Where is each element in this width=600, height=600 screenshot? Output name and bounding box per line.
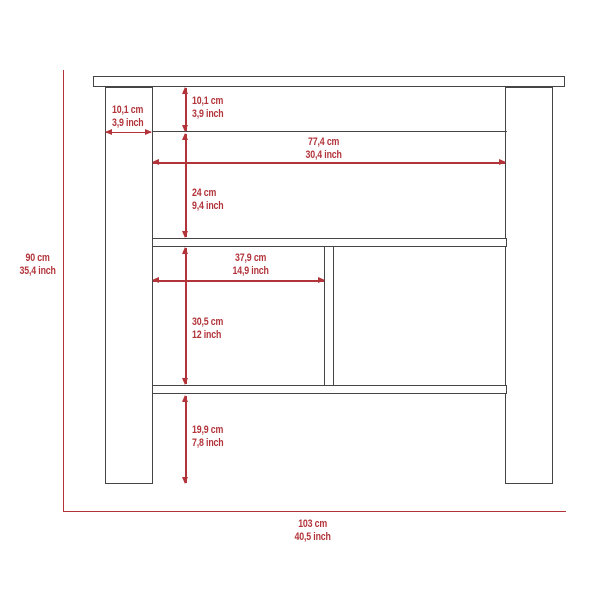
top-rail-height-label: 10,1 cm 3,9 inch [192, 95, 231, 120]
leg-width-arrow [106, 132, 151, 134]
upper-compartment-height-cm: 24 cm [192, 187, 224, 200]
arrowhead-down-icon [182, 477, 188, 484]
upper-compartment-height-inch: 9,4 inch [192, 200, 224, 213]
inner-width-cm: 77,4 cm [306, 136, 342, 149]
arrowhead-right-icon [145, 129, 152, 135]
upper-compartment-height-arrow [185, 134, 187, 237]
arrowhead-up-icon [182, 87, 188, 94]
leg-width-cm: 10,1 cm [112, 104, 144, 117]
cubby-height-cm: 30,5 cm [192, 316, 223, 329]
cubby-width-inch: 14,9 inch [233, 265, 269, 278]
arrowhead-left-icon [105, 129, 112, 135]
cubby-width-arrow [153, 280, 324, 282]
arrowhead-down-icon [182, 125, 188, 132]
arrowhead-down-icon [182, 378, 188, 385]
leg-width-inch: 3,9 inch [112, 117, 144, 130]
cubby-width-cm: 37,9 cm [233, 252, 269, 265]
cubby-height-inch: 12 inch [192, 329, 223, 342]
right-leg [505, 87, 553, 484]
top-rail-height-cm: 10,1 cm [192, 95, 224, 108]
arrowhead-left-icon [152, 277, 159, 283]
overall-height-inch: 35,4 inch [20, 265, 56, 278]
arrowhead-down-icon [182, 231, 188, 238]
bottom-gap-height-inch: 7,8 inch [192, 437, 224, 450]
arrowhead-up-icon [182, 133, 188, 140]
inner-width-arrow [153, 162, 505, 164]
upper-compartment-height-label: 24 cm 9,4 inch [192, 187, 231, 212]
arrowhead-up-icon [182, 247, 188, 254]
arrowhead-up-icon [182, 395, 188, 402]
height-extension-line [63, 70, 65, 512]
width-extension-line [63, 511, 566, 513]
overall-width-inch: 40,5 inch [295, 531, 331, 544]
left-leg [105, 87, 153, 484]
cubby-height-label: 30,5 cm 12 inch [192, 316, 231, 341]
arrowhead-right-icon [499, 159, 506, 165]
bottom-gap-height-cm: 19,9 cm [192, 424, 224, 437]
bottom-gap-height-label: 19,9 cm 7,8 inch [192, 424, 231, 449]
overall-width-cm: 103 cm [295, 518, 331, 531]
bottom-gap-height-arrow [185, 396, 187, 483]
countertop [93, 76, 565, 87]
inner-width-inch: 30,4 inch [306, 149, 342, 162]
top-rail-height-inch: 3,9 inch [192, 108, 224, 121]
top-rail-line [152, 131, 507, 133]
center-divider [324, 246, 334, 387]
overall-height-cm: 90 cm [20, 252, 56, 265]
arrowhead-left-icon [152, 159, 159, 165]
cubby-height-arrow [185, 248, 187, 384]
top-rail-height-arrow [185, 88, 187, 131]
arrowhead-right-icon [318, 277, 325, 283]
dimension-diagram: 90 cm 35,4 inch 10,1 cm 3,9 inch 10,1 cm… [0, 0, 600, 600]
leg-width-label: 10,1 cm 3,9 inch [112, 104, 151, 129]
bottom-shelf [152, 385, 507, 394]
